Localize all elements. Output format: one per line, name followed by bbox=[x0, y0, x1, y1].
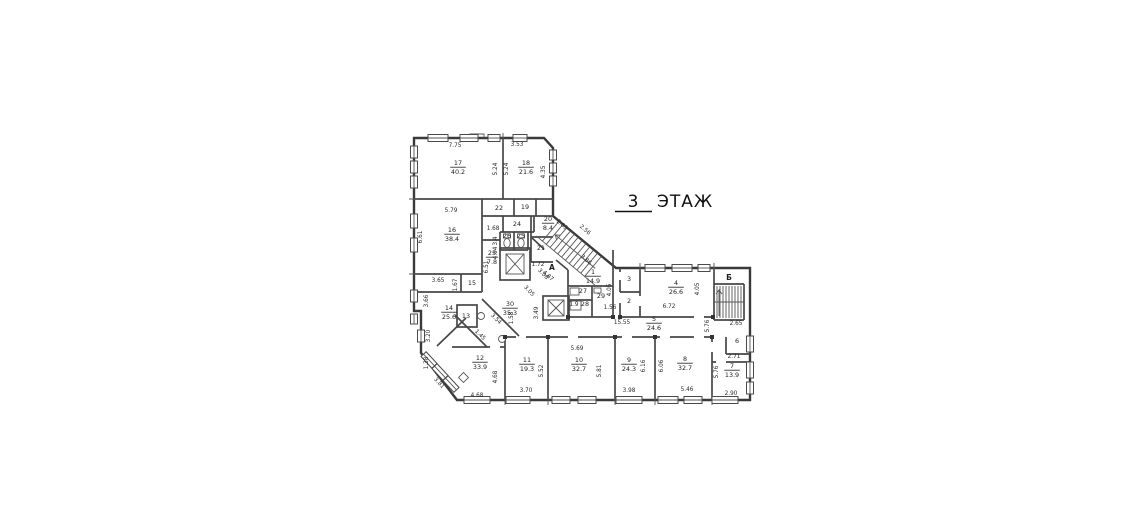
dimension-label: 3.4 bbox=[493, 236, 499, 245]
column-round bbox=[478, 313, 485, 320]
dimension-label: 3.70 bbox=[520, 388, 533, 394]
room-number: 6 bbox=[735, 337, 739, 345]
floor-plan-page: 1740.21821.61638.42219242625208.421237.8… bbox=[0, 0, 1134, 530]
dimension-label: 5.52 bbox=[539, 364, 545, 377]
room-number: 16 bbox=[448, 226, 456, 234]
dimension-label: 6.51 bbox=[484, 260, 490, 273]
room-number: 12 bbox=[476, 354, 484, 362]
floor-word: ЭТАЖ bbox=[657, 192, 713, 212]
room-number: 2 bbox=[627, 297, 631, 305]
dimension-label: 1.56 bbox=[604, 305, 617, 311]
room-number: 5 bbox=[652, 315, 656, 323]
room-area: 21.6 bbox=[519, 168, 533, 176]
dimension-label: 2.71 bbox=[728, 354, 741, 360]
elevator-1 bbox=[500, 248, 530, 280]
room-area: 14.9 bbox=[586, 277, 600, 285]
room-area: 8.4 bbox=[543, 224, 553, 232]
room-number: 3 bbox=[627, 275, 631, 283]
room-and-dimension-labels: 1740.21821.61638.42219242625208.421237.8… bbox=[418, 142, 743, 399]
room-area: 24.3 bbox=[622, 365, 636, 373]
dimension-label: 5.81 bbox=[597, 364, 603, 377]
dimension-label: 5.46 bbox=[681, 387, 694, 393]
dimension-label: 3.98 bbox=[623, 388, 636, 394]
dimension-label: 6.61 bbox=[418, 230, 424, 243]
room-number: 30 bbox=[506, 300, 514, 308]
dimension-label: 5.24 bbox=[504, 162, 510, 175]
dimension-label: 4.05 bbox=[695, 282, 701, 295]
room-number: 11 bbox=[523, 356, 531, 364]
dimension-label: 1.68 bbox=[487, 226, 500, 232]
dimension-label: 4.35 bbox=[541, 165, 547, 178]
room-number: 27 bbox=[579, 287, 587, 295]
room-number: 15 bbox=[468, 279, 476, 287]
dimension-label: 5.76 bbox=[714, 365, 720, 378]
dimension-label: 6.16 bbox=[641, 359, 647, 372]
dimension-label: 5.76 bbox=[705, 319, 711, 332]
room-area: 32.7 bbox=[572, 365, 586, 373]
elevator-x-icon bbox=[506, 254, 524, 274]
dimension-label: 7.75 bbox=[449, 143, 462, 149]
room-area: 25.6 bbox=[442, 313, 456, 321]
room-number: 28 bbox=[581, 300, 589, 308]
room-number: 4 bbox=[674, 279, 678, 287]
dimension-label: 4.68 bbox=[471, 393, 484, 399]
room-area: 19.3 bbox=[520, 365, 534, 373]
room-number: 19 bbox=[521, 203, 529, 211]
dimension-label: 4.05 bbox=[607, 283, 613, 296]
floor-plan-drawing: 1740.21821.61638.42219242625208.421237.8… bbox=[0, 0, 1134, 530]
room-number: 24 bbox=[513, 220, 521, 228]
room-number: 10 bbox=[575, 356, 583, 364]
room-number: 9 bbox=[627, 356, 631, 364]
dimension-label: 3.20 bbox=[426, 329, 432, 342]
dimension-label: 2.63 bbox=[555, 219, 569, 232]
dimension-label: 3.66 bbox=[424, 294, 430, 307]
room-number: 8 bbox=[683, 355, 687, 363]
room-number: 29 bbox=[597, 292, 605, 300]
room-area: 38.4 bbox=[445, 235, 459, 243]
dimension-label: 3.54 bbox=[489, 313, 502, 326]
dimension-label: 1.58 bbox=[509, 311, 515, 324]
room-area: 24.6 bbox=[647, 324, 661, 332]
stairwell-letter: А bbox=[549, 263, 555, 272]
plan-title: 3 ЭТАЖ bbox=[615, 192, 713, 212]
dimension-label: 6.06 bbox=[659, 359, 665, 372]
dimension-label: 2.65 bbox=[730, 321, 743, 327]
stairs-b bbox=[714, 286, 744, 318]
stairwell-letter: Б bbox=[726, 273, 732, 282]
dimension-label: 15.55 bbox=[614, 320, 631, 326]
room-number: 22 bbox=[495, 204, 503, 212]
dimension-label: 2.56 bbox=[578, 224, 592, 237]
floor-number: 3 bbox=[628, 192, 639, 212]
room-area: 26.6 bbox=[669, 288, 683, 296]
dimension-label: 4.68 bbox=[493, 370, 499, 383]
room-number: 18 bbox=[522, 159, 530, 167]
dimension-label: 5.69 bbox=[571, 346, 584, 352]
dimension-label: 2.90 bbox=[725, 391, 738, 397]
dimension-label: 1.38 bbox=[424, 356, 430, 369]
room-number: 1 bbox=[591, 268, 595, 276]
room-number: 20 bbox=[544, 215, 552, 223]
dimension-label: 5.24 bbox=[493, 162, 499, 175]
column-diamond bbox=[459, 373, 469, 383]
room-area: 13.9 bbox=[725, 371, 739, 379]
room-area: 32.7 bbox=[678, 364, 692, 372]
elevator-x-icon bbox=[548, 300, 564, 316]
dimension-label: 6.72 bbox=[663, 304, 676, 310]
dimension-label: 3.65 bbox=[432, 278, 445, 284]
room-number: 17 bbox=[454, 159, 462, 167]
dimension-label: 1.72 bbox=[532, 262, 545, 268]
dimension-label: 5.79 bbox=[445, 208, 458, 214]
room-area: 40.2 bbox=[451, 168, 465, 176]
elevator-2 bbox=[543, 296, 569, 320]
sink-icon bbox=[570, 288, 579, 295]
room-number: 26 bbox=[503, 232, 511, 240]
room-number: 7 bbox=[730, 362, 734, 370]
room-area: 33.9 bbox=[473, 363, 487, 371]
dimension-label: 3.49 bbox=[534, 306, 540, 319]
dimension-label: 3.05 bbox=[522, 285, 535, 299]
room-number: 25 bbox=[517, 232, 525, 240]
room-number: 14 bbox=[445, 304, 453, 312]
room-number: 21 bbox=[537, 244, 545, 252]
dimension-label: 4.04 bbox=[493, 246, 499, 259]
dimension-label: 1.67 bbox=[453, 278, 459, 291]
room-number: 13 bbox=[462, 312, 470, 320]
dimension-label: 1.9 bbox=[569, 302, 578, 308]
dimension-label: 3.53 bbox=[511, 142, 524, 148]
